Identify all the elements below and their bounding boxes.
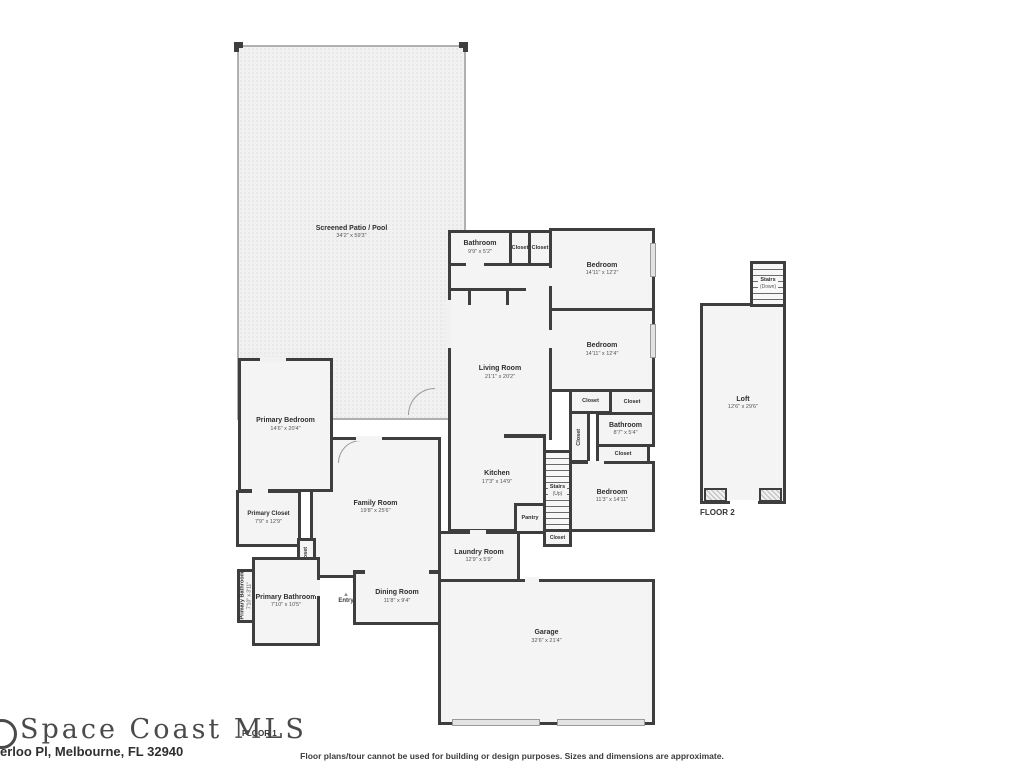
room-bedroom-top: Bedroom 14'11" x 12'2" (549, 228, 655, 311)
door-opening (730, 500, 758, 505)
room-label: Primary Bathroom (239, 572, 246, 620)
room-dims: 17'3" x 14'9" (482, 479, 512, 486)
room-pantry: Pantry (514, 503, 546, 534)
door-opening (252, 488, 268, 493)
door-opening (549, 268, 554, 286)
room-primary-closet: Primary Closet 7'9" x 12'9" (236, 490, 301, 547)
room-label: Closet (624, 399, 641, 406)
room-label: Bathroom (463, 240, 496, 248)
stairs-label: Stairs (Up) (548, 483, 567, 498)
floor2-label: FLOOR 2 (700, 508, 735, 517)
door-opening (525, 577, 539, 582)
door-opening (315, 580, 320, 596)
door-opening (260, 357, 286, 362)
door-opening (588, 461, 604, 466)
room-bathroom-hall: Bathroom 8'7" x 5'4" (596, 412, 655, 447)
garage-door (557, 719, 645, 726)
room-label: Garage (534, 629, 558, 637)
room-label: Bedroom (587, 342, 618, 350)
room-label: Closet (512, 245, 529, 252)
room-dims: 9'9" x 5'2" (468, 249, 492, 256)
disclaimer-text: Floor plans/tour cannot be used for buil… (0, 751, 1024, 761)
room-dims: 7'9" x 12'9" (255, 519, 282, 526)
room-label: Laundry Room (454, 549, 503, 557)
room-label: Closet (550, 535, 565, 541)
room-dims: 34'2" x 59'3" (336, 233, 366, 240)
room-dims: 14'6" x 20'4" (270, 426, 300, 433)
room-dims: 32'6" x 21'4" (531, 638, 561, 645)
window (650, 324, 656, 358)
room-label: Closet (582, 398, 599, 405)
mls-logo-text: Space Coast MLS (20, 714, 307, 745)
stairs-label: Stairs (Down) (758, 276, 778, 291)
door-opening (356, 436, 382, 441)
room-label: Primary Closet (247, 511, 289, 518)
room-stairs-down: Stairs (Down) (750, 261, 786, 307)
floor-plan-page: Screened Patio / Pool 34'2" x 59'3" Bath… (0, 0, 1024, 768)
room-dims: 14'11" x 12'4" (586, 351, 619, 358)
room-primary-water-closet: Primary Bathroom 7'10" x 3'11" (237, 569, 255, 623)
door-opening (445, 300, 451, 348)
room-primary-bedroom: Primary Bedroom 14'6" x 20'4" (238, 358, 333, 492)
entry-label: Entry (338, 598, 353, 604)
room-laundry: Laundry Room 12'9" x 5'9" (438, 531, 520, 582)
room-primary-bathroom: Primary Bathroom 7'10" x 10'5" (252, 557, 320, 646)
room-stairs-up: Stairs (Up) (543, 450, 572, 532)
wall-segment (448, 288, 526, 291)
room-closet-vertical: Closet (569, 411, 590, 463)
room-bedroom-back: Bedroom 11'3" x 14'11" (569, 461, 655, 532)
room-label: Dining Room (375, 589, 419, 597)
room-label: Bedroom (587, 262, 618, 270)
entry-marker: ▲ Entry (328, 592, 364, 604)
room-dims: 8'7" x 5'4" (613, 430, 637, 437)
room-label: Closet (615, 451, 632, 458)
wall-segment (504, 434, 546, 438)
room-dims: 14'11" x 12'2" (586, 270, 619, 277)
wall-segment (506, 291, 509, 305)
room-closet: Closet (543, 529, 572, 547)
wall-segment (234, 42, 239, 52)
room-bedroom-mid: Bedroom 14'11" x 12'4" (549, 308, 655, 392)
wall-segment (353, 570, 365, 574)
room-label: Bathroom (609, 422, 642, 430)
window (650, 243, 656, 277)
wall-segment (463, 42, 468, 52)
room-label: Family Room (354, 500, 398, 508)
hatched-pad (704, 488, 727, 502)
room-label: Screened Patio / Pool (316, 225, 388, 233)
room-dims: 11'3" x 14'11" (596, 497, 628, 504)
room-dims: 7'10" x 10'5" (271, 602, 301, 609)
room-label: Closet (532, 245, 549, 252)
room-garage: Garage 32'6" x 21'4" (438, 579, 655, 725)
door-opening (470, 530, 486, 535)
room-dims: 7'10" x 3'11" (246, 582, 253, 609)
door-opening (466, 261, 484, 266)
wall-segment (468, 291, 471, 305)
door-opening (549, 330, 554, 348)
garage-door (452, 719, 540, 726)
room-label: Kitchen (484, 470, 510, 478)
room-dims: 12'9" x 5'9" (465, 557, 492, 564)
room-label: Living Room (479, 365, 521, 373)
room-dims: 21'1" x 20'2" (485, 374, 515, 381)
wall-segment (429, 570, 441, 574)
room-label: Primary Bathroom (255, 594, 316, 602)
room-dims: 11'8" x 9'4" (384, 598, 411, 605)
room-dims: 19'8" x 25'6" (360, 508, 390, 515)
room-dining: Dining Room 11'8" x 9'4" (353, 572, 441, 625)
hatched-pad (759, 488, 782, 502)
room-dims: 12'6" x 29'6" (728, 404, 758, 411)
room-label: Bedroom (597, 489, 628, 497)
room-label: Pantry (521, 515, 538, 522)
room-label: Loft (736, 396, 749, 404)
room-label-wrap: Primary Bathroom 7'10" x 3'11" (239, 572, 252, 620)
room-label: Primary Bedroom (256, 417, 315, 425)
room-label: Closet (576, 429, 583, 446)
room-loft: Loft 12'6" x 29'6" (700, 303, 786, 504)
room-label-wrap: Closet (576, 429, 583, 446)
